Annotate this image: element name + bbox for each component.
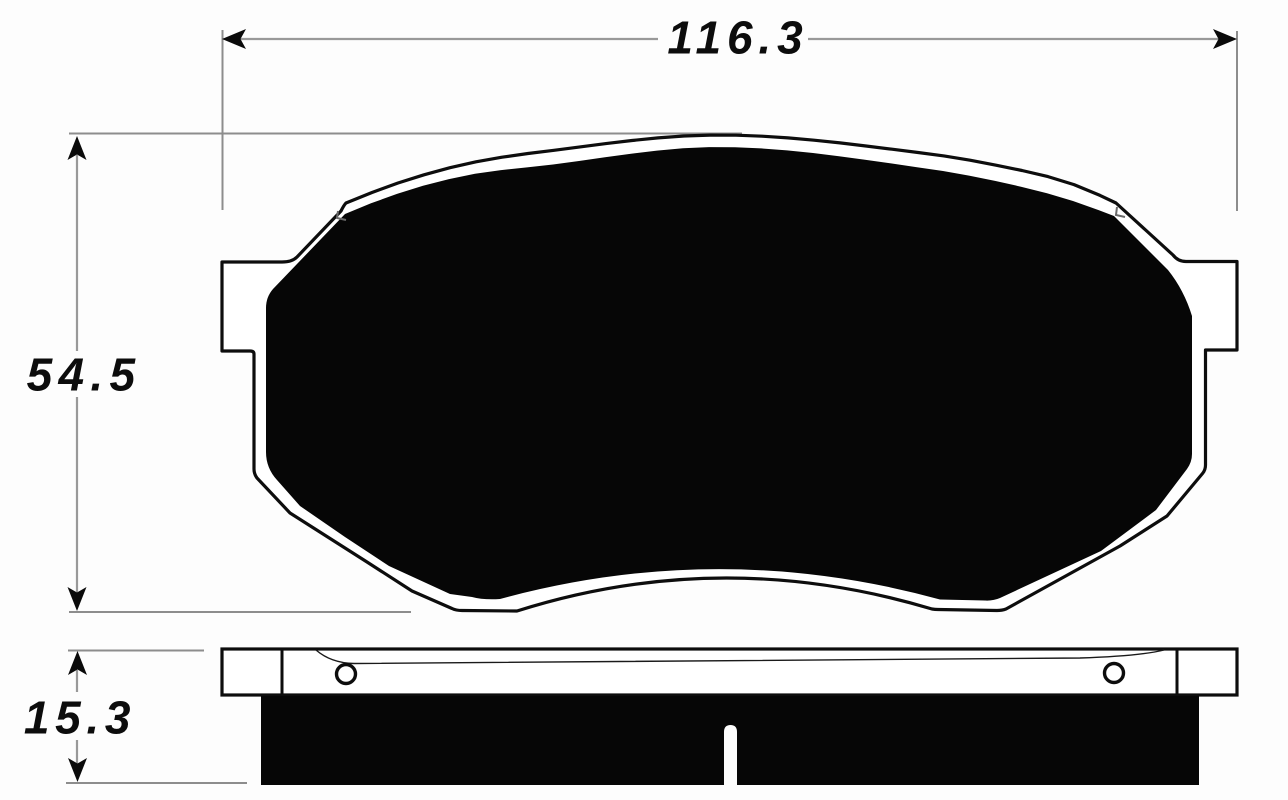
svg-text:54.5: 54.5 (27, 349, 142, 401)
svg-text:15.3: 15.3 (24, 692, 136, 744)
svg-text:116.3: 116.3 (667, 12, 808, 64)
